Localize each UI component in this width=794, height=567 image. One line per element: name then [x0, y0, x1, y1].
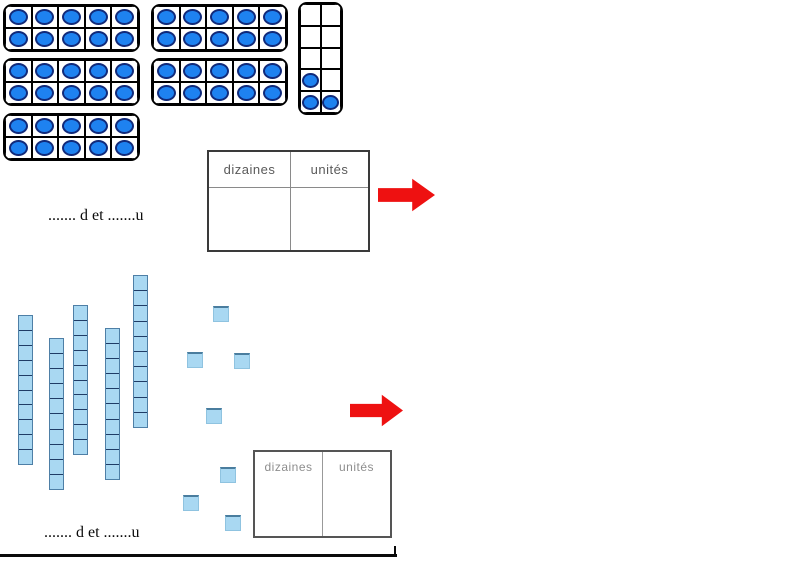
rod-segment — [74, 321, 87, 336]
ten-frame-cell — [111, 137, 138, 159]
rod-segment — [134, 367, 147, 382]
rod-segment — [19, 435, 32, 450]
rod-segment — [134, 306, 147, 321]
rod-segment — [74, 306, 87, 321]
counter-dot — [89, 85, 108, 101]
base-ten-rod — [49, 338, 64, 490]
counter-dot — [9, 63, 28, 79]
counter-dot — [183, 9, 202, 25]
ten-frame-cell — [321, 91, 342, 113]
counter-dot — [62, 118, 81, 134]
counter-dot — [35, 63, 54, 79]
ten-frame-cell — [321, 26, 342, 48]
ten-frame-cell — [206, 28, 233, 50]
ten-frame-cell — [5, 115, 32, 137]
ten-frame-cell — [300, 91, 321, 113]
ten-frame-cell — [180, 82, 207, 104]
counter-dot — [115, 118, 134, 134]
rod-segment — [134, 291, 147, 306]
tens-header-bottom: dizaines — [255, 452, 323, 478]
ten-frame-cell — [32, 82, 59, 104]
ten-frame-cell — [111, 60, 138, 82]
counter-dot — [183, 85, 202, 101]
ten-frame-cell — [321, 48, 342, 70]
ten-frame-cell — [85, 82, 112, 104]
ten-frame-cell — [180, 28, 207, 50]
ten-frame-full — [3, 58, 140, 106]
rod-segment — [106, 389, 119, 404]
ten-frame-cell — [111, 115, 138, 137]
ten-frame-cell — [153, 82, 180, 104]
tens-answer-cell-top — [209, 188, 291, 250]
counter-dot — [115, 9, 134, 25]
answer-line-top: ....... d et .......u — [48, 207, 144, 225]
counter-dot — [9, 118, 28, 134]
counter-dot — [9, 9, 28, 25]
counter-dot — [62, 9, 81, 25]
ten-frame-partial — [298, 2, 343, 115]
counter-dot — [237, 31, 256, 47]
rod-segment — [134, 382, 147, 397]
ten-frame-cell — [58, 28, 85, 50]
counter-dot — [263, 9, 282, 25]
ten-frame-cell — [300, 4, 321, 26]
ten-frame-cell — [259, 6, 286, 28]
ten-frame-cell — [259, 82, 286, 104]
counter-dot — [263, 85, 282, 101]
rod-segment — [19, 391, 32, 406]
rod-segment — [74, 336, 87, 351]
unit-square — [225, 515, 241, 531]
ten-frame-cell — [233, 60, 260, 82]
rod-segment — [106, 344, 119, 359]
counter-dot — [237, 85, 256, 101]
counter-dot — [9, 31, 28, 47]
counter-dot — [89, 63, 108, 79]
rod-segment — [106, 465, 119, 479]
ten-frame-cell — [321, 4, 342, 26]
counter-dot — [210, 63, 229, 79]
rod-segment — [50, 384, 63, 399]
ten-frame-full — [151, 58, 288, 106]
ten-frame-cell — [32, 60, 59, 82]
counter-dot — [89, 140, 108, 156]
ten-frame-cell — [206, 82, 233, 104]
counter-dot — [157, 9, 176, 25]
counter-dot — [9, 140, 28, 156]
ten-frame-cell — [153, 6, 180, 28]
rod-segment — [134, 398, 147, 413]
ten-frame-cell — [300, 69, 321, 91]
ten-frame-cell — [233, 28, 260, 50]
counter-dot — [210, 31, 229, 47]
counter-dot — [35, 118, 54, 134]
ten-frame-cell — [300, 26, 321, 48]
ten-frame-cell — [180, 60, 207, 82]
rod-segment — [106, 420, 119, 435]
ten-frame-cell — [206, 60, 233, 82]
ten-frame-cell — [32, 115, 59, 137]
ten-frame-cell — [153, 60, 180, 82]
ten-frame-cell — [206, 6, 233, 28]
ten-frame-cell — [58, 82, 85, 104]
rod-segment — [50, 430, 63, 445]
ten-frame-cell — [85, 137, 112, 159]
counter-dot — [157, 31, 176, 47]
tens-answer-cell-bottom — [255, 478, 323, 536]
rod-segment — [134, 276, 147, 291]
ten-frame-cell — [259, 28, 286, 50]
rod-segment — [134, 337, 147, 352]
counter-dot — [89, 31, 108, 47]
rod-segment — [19, 331, 32, 346]
ten-frame-full — [3, 113, 140, 161]
unit-square — [206, 408, 222, 424]
unit-square — [213, 306, 229, 322]
rod-segment — [106, 374, 119, 389]
rod-segment — [74, 440, 87, 454]
counter-dot — [157, 85, 176, 101]
ten-frame-cell — [58, 137, 85, 159]
ten-frame-cell — [233, 82, 260, 104]
ten-frame-cell — [233, 6, 260, 28]
counter-dot — [263, 63, 282, 79]
ten-frame-cell — [259, 60, 286, 82]
rod-segment — [50, 354, 63, 369]
counter-dot — [263, 31, 282, 47]
base-ten-rod — [73, 305, 88, 455]
rod-segment — [50, 445, 63, 460]
rod-segment — [50, 460, 63, 475]
counter-dot — [115, 140, 134, 156]
counter-dot — [302, 73, 319, 88]
ten-frame-cell — [58, 6, 85, 28]
base-ten-rod — [105, 328, 120, 480]
ten-frame-cell — [32, 6, 59, 28]
rod-segment — [74, 351, 87, 366]
rod-segment — [74, 381, 87, 396]
counter-dot — [62, 31, 81, 47]
counter-dot — [89, 9, 108, 25]
rod-segment — [50, 414, 63, 429]
counter-dot — [62, 63, 81, 79]
counter-dot — [302, 95, 319, 110]
rod-segment — [50, 399, 63, 414]
units-header-top: unités — [291, 152, 368, 188]
rod-segment — [74, 425, 87, 440]
rod-segment — [19, 420, 32, 435]
counter-dot — [183, 63, 202, 79]
ten-frame-cell — [5, 28, 32, 50]
rod-segment — [50, 339, 63, 354]
rod-segment — [50, 369, 63, 384]
ten-frame-cell — [5, 6, 32, 28]
ten-frame-full — [151, 4, 288, 52]
rod-segment — [106, 329, 119, 344]
counter-dot — [89, 118, 108, 134]
rod-segment — [19, 376, 32, 391]
ten-frame-cell — [5, 60, 32, 82]
counter-dot — [237, 63, 256, 79]
right-arrow-icon — [350, 393, 403, 428]
rod-segment — [74, 410, 87, 425]
place-value-table-top: dizaines unités — [207, 150, 370, 252]
ten-frame-cell — [111, 6, 138, 28]
ten-frame-cell — [111, 82, 138, 104]
counter-dot — [35, 9, 54, 25]
rod-segment — [106, 435, 119, 450]
worksheet-page: dizaines unités ....... d et .......u di… — [0, 0, 794, 567]
counter-dot — [115, 63, 134, 79]
units-answer-cell-bottom — [323, 478, 390, 536]
ten-frame-cell — [153, 28, 180, 50]
place-value-table-bottom: dizaines unités — [253, 450, 392, 538]
ten-frame-cell — [300, 48, 321, 70]
rod-segment — [134, 352, 147, 367]
counter-dot — [237, 9, 256, 25]
ten-frame-cell — [85, 28, 112, 50]
rod-segment — [74, 395, 87, 410]
units-header-bottom: unités — [323, 452, 390, 478]
ten-frame-cell — [32, 28, 59, 50]
counter-dot — [183, 31, 202, 47]
rod-segment — [50, 475, 63, 489]
rod-segment — [134, 322, 147, 337]
ten-frame-cell — [321, 69, 342, 91]
right-arrow-icon — [378, 177, 435, 213]
unit-square — [234, 353, 250, 369]
rod-segment — [106, 404, 119, 419]
ten-frame-cell — [85, 60, 112, 82]
rod-segment — [19, 405, 32, 420]
ten-frame-cell — [58, 60, 85, 82]
base-ten-rod — [18, 315, 33, 465]
ten-frame-cell — [5, 137, 32, 159]
counter-dot — [115, 85, 134, 101]
counter-dot — [35, 85, 54, 101]
counter-dot — [115, 31, 134, 47]
page-border-bottom-rule — [0, 554, 397, 557]
ten-frame-full — [3, 4, 140, 52]
rod-segment — [106, 450, 119, 465]
units-answer-cell-top — [291, 188, 368, 250]
ten-frame-cell — [58, 115, 85, 137]
counter-dot — [322, 95, 339, 110]
ten-frame-cell — [85, 115, 112, 137]
rod-segment — [106, 359, 119, 374]
counter-dot — [35, 31, 54, 47]
rod-segment — [19, 361, 32, 376]
page-border-corner-tick — [394, 546, 396, 555]
rod-segment — [19, 316, 32, 331]
rod-segment — [134, 413, 147, 427]
counter-dot — [9, 85, 28, 101]
ten-frame-cell — [111, 28, 138, 50]
counter-dot — [62, 85, 81, 101]
ten-frame-cell — [5, 82, 32, 104]
ten-frame-cell — [32, 137, 59, 159]
tens-header-top: dizaines — [209, 152, 291, 188]
rod-segment — [74, 366, 87, 381]
counter-dot — [62, 140, 81, 156]
counter-dot — [35, 140, 54, 156]
unit-square — [187, 352, 203, 368]
rod-segment — [19, 346, 32, 361]
counter-dot — [157, 63, 176, 79]
unit-square — [183, 495, 199, 511]
counter-dot — [210, 9, 229, 25]
ten-frame-cell — [180, 6, 207, 28]
rod-segment — [19, 450, 32, 464]
answer-line-bottom: ....... d et .......u — [44, 524, 140, 542]
base-ten-rod — [133, 275, 148, 428]
unit-square — [220, 467, 236, 483]
ten-frame-cell — [85, 6, 112, 28]
counter-dot — [210, 85, 229, 101]
